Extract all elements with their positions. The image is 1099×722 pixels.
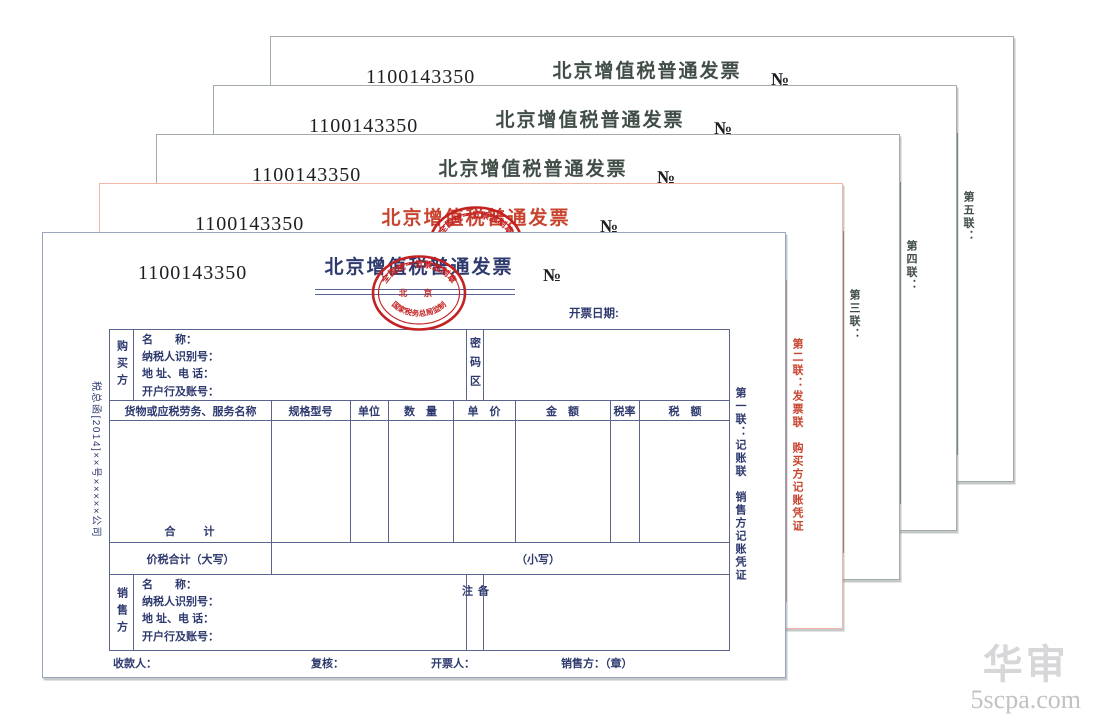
col-unit-price: 单 价: [453, 401, 515, 421]
remark-label: 备注: [466, 575, 483, 650]
buyer-label: 购买方: [110, 330, 133, 400]
col-spec: 规格型号: [271, 401, 350, 421]
buyer-bank-label: 开户行及账号：: [142, 384, 219, 401]
seal-top-text: 全国统一发票监制章: [378, 258, 460, 286]
svg-text:全国统一发票监制章: 全国统一发票监制章: [378, 258, 460, 286]
buyer-address-label: 地 址、电 话：: [142, 366, 219, 383]
buyer-taxid-label: 纳税人识别号：: [142, 349, 219, 366]
signature-row: 收款人： 复核： 开票人： 销售方：（章）: [109, 655, 730, 671]
seller-seal-label: 销售方：（章）: [561, 655, 633, 671]
items-header-row: 货物或应税劳务、服务名称 规格型号 单位 数 量 单 价 金 额 税率 税 额: [109, 401, 730, 421]
total-in-figures-label: （小写）: [516, 551, 560, 567]
tax-supervision-seal-stamp: 全国统一发票监制章 北 京 国家税务总局监制: [369, 247, 469, 339]
seller-taxid-label: 纳税人识别号：: [142, 594, 219, 611]
seller-bank-label: 开户行及账号：: [142, 629, 219, 646]
buyer-section: 购买方 名 称： 纳税人识别号： 地 址、电 话： 开户行及账号： 密码区: [109, 329, 730, 401]
svg-text:国家税务总局监制: 国家税务总局监制: [390, 299, 448, 318]
invoice-number-symbol: №: [543, 265, 561, 286]
password-area-label: 密码区: [466, 330, 483, 400]
col-tax-rate: 税率: [610, 401, 639, 421]
watermark-logo-text: 华审: [971, 644, 1081, 686]
buyer-name-label: 名 称：: [142, 332, 219, 349]
doc-reference: 税总函[2014]××号×××××公司: [90, 381, 105, 538]
invoice-date-label: 开票日期:: [569, 305, 619, 321]
seal-center-text: 北 京: [399, 288, 439, 298]
invoice-sheet-copy-1: 1100143350 北京增值税普通发票 № 开票日期: 全国统一发票监制章 北…: [42, 232, 786, 678]
copy-label: 第三联：: [846, 289, 862, 464]
items-body: 合 计: [109, 421, 730, 543]
invoice-title: 北京增值税普通发票: [551, 56, 743, 83]
seller-name-label: 名 称：: [142, 577, 219, 594]
watermark: 华审 5scpa.com: [971, 644, 1081, 714]
summary-row: 价税合计（大写） （小写）: [109, 543, 730, 575]
col-amount: 金 额: [515, 401, 610, 421]
watermark-site-text: 5scpa.com: [971, 686, 1081, 714]
invoice-title: 北京增值税普通发票: [437, 154, 629, 181]
reviewer-label: 复核：: [311, 655, 344, 671]
invoice-title: 北京增值税普通发票: [494, 105, 686, 132]
seller-section: 销售方 名 称： 纳税人识别号： 地 址、电 话： 开户行及账号： 备注: [109, 575, 730, 651]
invoice-stack-canvas: 华审 5scpa.com 1100143350 北京增值税普通发票 № 开票日期…: [0, 0, 1099, 722]
seller-label: 销售方: [110, 575, 133, 650]
payee-label: 收款人：: [113, 655, 157, 671]
copy-label: 第五联：: [960, 191, 976, 366]
col-unit: 单位: [350, 401, 388, 421]
copy-label: 第二联：发票联 购买方记账凭证: [789, 338, 805, 513]
invoice-serial: 1100143350: [138, 262, 247, 285]
copy-label: 第四联：: [903, 240, 919, 415]
copy-label: 第一联：记账联 销售方记账凭证: [732, 387, 748, 562]
seal-bottom-text: 国家税务总局监制: [390, 299, 448, 318]
items-total-label: 合 计: [110, 523, 271, 539]
col-goods-name: 货物或应税劳务、服务名称: [110, 401, 271, 421]
col-tax-amount: 税 额: [639, 401, 731, 421]
seller-fields: 名 称： 纳税人识别号： 地 址、电 话： 开户行及账号：: [142, 577, 219, 646]
total-in-words-label: 价税合计（大写）: [110, 543, 271, 575]
buyer-fields: 名 称： 纳税人识别号： 地 址、电 话： 开户行及账号：: [142, 332, 219, 401]
drawer-label: 开票人：: [431, 655, 475, 671]
seller-address-label: 地 址、电 话：: [142, 611, 219, 628]
col-quantity: 数 量: [388, 401, 453, 421]
